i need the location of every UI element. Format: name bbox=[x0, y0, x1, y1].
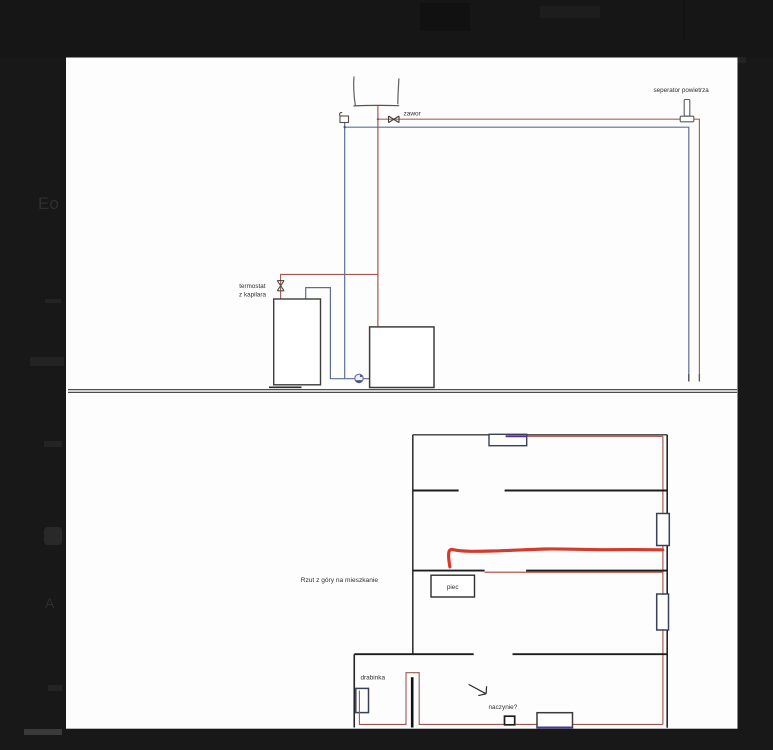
svg-text:Eo: Eo bbox=[38, 194, 59, 213]
svg-text:A: A bbox=[45, 595, 55, 611]
svg-text:seperator powietrza: seperator powietrza bbox=[654, 87, 710, 94]
svg-text:drabinka: drabinka bbox=[361, 675, 386, 682]
svg-text:zawor: zawor bbox=[404, 110, 422, 117]
svg-text:naczynie?: naczynie? bbox=[489, 704, 518, 711]
svg-text:z kapilara: z kapilara bbox=[239, 292, 266, 299]
svg-text:termostat: termostat bbox=[239, 283, 265, 290]
svg-text:Rzut z góry na mieszkanie: Rzut z góry na mieszkanie bbox=[301, 577, 379, 584]
svg-text:piec: piec bbox=[447, 584, 460, 591]
